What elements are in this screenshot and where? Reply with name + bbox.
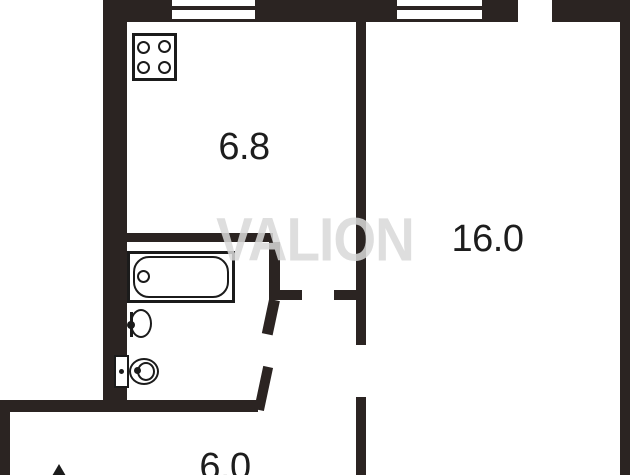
stove-burner	[137, 41, 150, 54]
wall-hallway-top	[0, 400, 258, 412]
window-sill-line	[397, 19, 482, 22]
window-sill-line	[172, 19, 255, 22]
window-frame-line	[397, 6, 482, 10]
window-frame-line	[172, 6, 255, 10]
toilet-flush-dot	[134, 367, 141, 374]
kitchen-area-label: 6.8	[198, 126, 290, 170]
hallway-area-label: 6.0	[180, 446, 270, 475]
valion-watermark: VALION	[155, 209, 475, 271]
entrance-arrow-icon	[52, 464, 66, 475]
wall-left-exterior	[103, 0, 127, 412]
kitchen-window	[172, 0, 255, 22]
wall-top-segment-d	[552, 0, 630, 22]
wall-top-segment-b	[255, 0, 397, 22]
door-jamb-left	[280, 290, 302, 300]
wall-kitchen-living-upper	[356, 22, 366, 345]
floorplan-canvas: 6.8 16.0 6.0 VALION	[0, 0, 630, 475]
living-room-window	[397, 0, 482, 22]
stove-body	[132, 33, 177, 81]
wall-right-exterior	[620, 0, 630, 475]
stove-burner	[137, 61, 150, 74]
stove-burner	[158, 61, 171, 74]
door-jamb-right	[334, 290, 356, 300]
wall-top-segment-c	[482, 0, 518, 22]
hallway-door-leaf	[254, 366, 273, 411]
bathtub-drain	[137, 270, 150, 283]
wall-hallway-left	[0, 412, 10, 475]
wall-top-segment-a	[103, 0, 172, 22]
stove-burner	[158, 40, 171, 53]
sink-tap	[127, 321, 135, 329]
toilet-tank-button	[119, 369, 124, 374]
wall-kitchen-living-lower	[356, 397, 366, 475]
bathroom-door-leaf	[262, 299, 280, 336]
